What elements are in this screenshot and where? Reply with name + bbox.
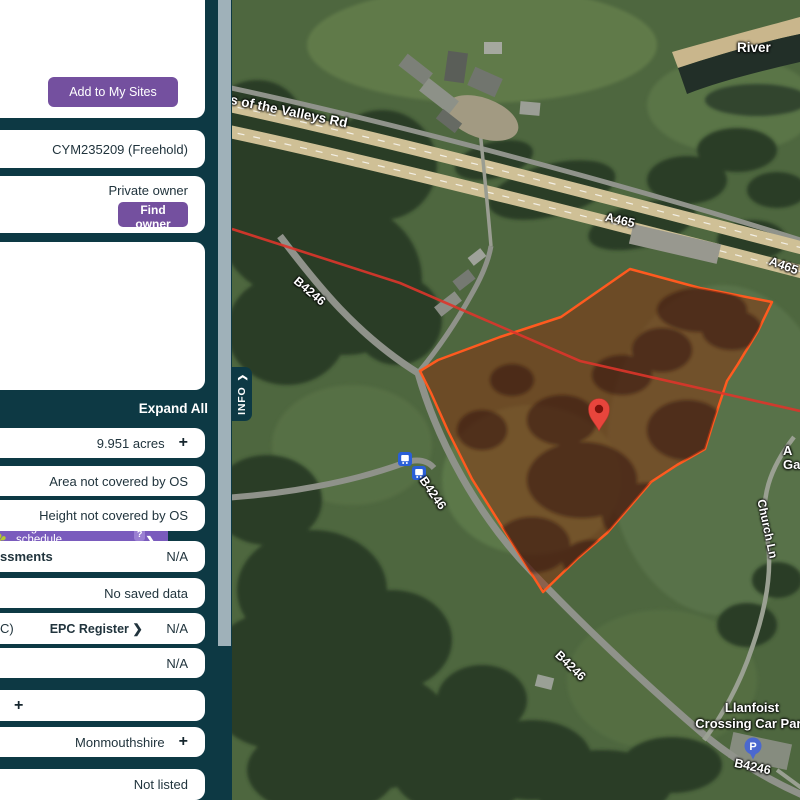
- listing-value: Not listed: [134, 777, 188, 792]
- acreage-value: 9.951 acres: [97, 436, 165, 451]
- epc-row: C) EPC Register ❯ N/A: [0, 613, 205, 644]
- authority-row[interactable]: Monmouthshire +: [0, 727, 205, 757]
- os-height-value: Height not covered by OS: [39, 508, 188, 523]
- satellite-map[interactable]: P River s of the Valleys Rd A465 A465 B4…: [232, 0, 800, 800]
- authority-value: Monmouthshire: [75, 735, 165, 750]
- map-terrain: P: [232, 0, 800, 800]
- saved-data-row: No saved data: [0, 578, 205, 608]
- expand-all-button[interactable]: Expand All: [0, 398, 232, 420]
- assessments-value: N/A: [166, 549, 188, 564]
- epc-value: N/A: [166, 621, 188, 636]
- find-owner-button[interactable]: Find owner: [118, 202, 188, 227]
- os-area-row: Area not covered by OS: [0, 466, 205, 496]
- add-to-my-sites-button[interactable]: Add to My Sites: [48, 77, 178, 107]
- property-sidebar: Add to My Sites CYM235209 (Freehold) Pri…: [0, 0, 232, 800]
- assessments-row: ssments N/A: [0, 541, 205, 572]
- epc-register-link[interactable]: EPC Register ❯: [50, 621, 143, 636]
- na-row: N/A: [0, 648, 205, 678]
- expand-plus-icon[interactable]: +: [179, 733, 188, 751]
- collapse-chevron-icon: ❯: [237, 373, 248, 381]
- saved-data-value: No saved data: [104, 586, 188, 601]
- bus-stop-icon[interactable]: [398, 452, 412, 466]
- register-card: ✽ Register & lease schedule ? £3.00 ❯: [0, 242, 205, 390]
- land-app: Add to My Sites CYM235209 (Freehold) Pri…: [0, 0, 800, 800]
- epc-label: C): [0, 621, 14, 636]
- na-value: N/A: [166, 656, 188, 671]
- svg-text:P: P: [749, 741, 756, 753]
- bus-stop-icon[interactable]: [412, 466, 426, 480]
- info-panel-toggle[interactable]: INFO ❯: [232, 367, 252, 421]
- title-number-value: CYM235209 (Freehold): [52, 142, 188, 157]
- owner-type-label: Private owner: [109, 183, 188, 198]
- sidebar-scrollbar[interactable]: [218, 0, 231, 646]
- acreage-row[interactable]: 9.951 acres +: [0, 428, 205, 458]
- expand-plus-icon[interactable]: +: [179, 434, 188, 452]
- assessments-label: ssments: [0, 549, 53, 564]
- expand-plus-icon[interactable]: +: [14, 697, 23, 715]
- os-area-value: Area not covered by OS: [49, 474, 188, 489]
- title-number-card: CYM235209 (Freehold): [0, 130, 205, 168]
- expandable-row[interactable]: +: [0, 690, 205, 721]
- listing-row: Not listed: [0, 769, 205, 800]
- os-height-row: Height not covered by OS: [0, 500, 205, 531]
- info-tab-label: INFO: [236, 387, 248, 415]
